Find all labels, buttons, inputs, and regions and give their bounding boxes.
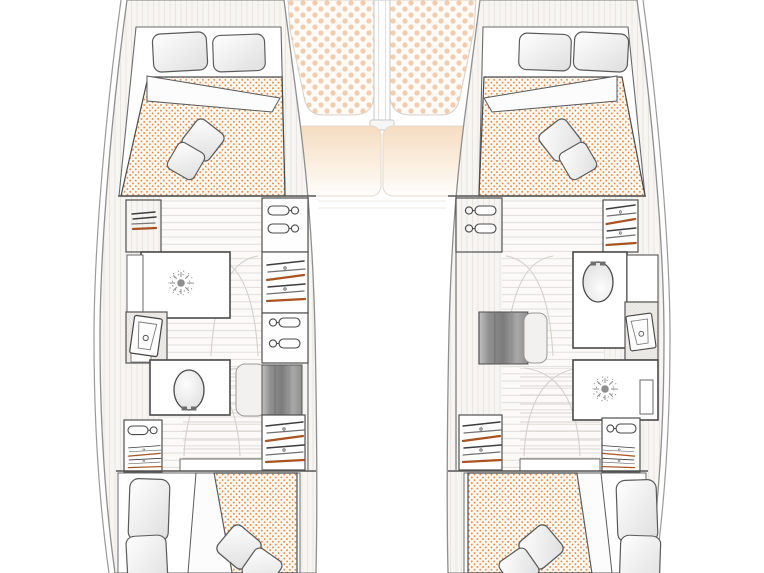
wardrobe [262,252,308,313]
toilet-room [150,360,230,415]
starboard-sunpad [388,0,476,115]
washbasin-area [625,302,658,360]
toilet-icon [583,262,613,303]
pillow [518,33,571,71]
port-sunpad [288,0,376,115]
shower-room [573,360,658,420]
companionway-steps [236,364,302,416]
catamaran-floorplan [0,0,764,573]
pillow [152,32,208,73]
pillow [128,478,170,541]
pillow [573,32,629,73]
starboard-hull [447,0,670,573]
hanging-locker [262,313,308,363]
locker-aft-outer [124,420,162,472]
mast-beam [370,0,394,130]
starboard-aft-cabin [448,471,661,573]
toilet-room [573,252,627,348]
shower-room [127,252,230,318]
side-cabinet [627,255,658,302]
hanging-locker [262,198,308,252]
steps-icon [262,365,302,415]
pillow [126,535,169,573]
toilet-icon [174,370,204,411]
shelf-cabinet [126,200,161,252]
washbasin-icon [626,313,656,351]
washbasin-area [126,312,167,363]
wardrobe [603,200,638,252]
washbasin-icon [129,315,162,357]
steps-icon [479,312,528,364]
aft-shelf [180,459,262,471]
hanging-locker [456,198,502,252]
port-aft-cabin [116,471,316,573]
port-hull [94,0,317,573]
locker-aft-inner [459,415,502,470]
companionway-steps [479,312,547,364]
floorplan-canvas [0,0,764,573]
locker-aft-inner [262,415,305,470]
aft-shelf [520,459,600,471]
saloon-front-hint [318,201,446,208]
locker-aft-outer [602,418,640,472]
pillow [212,34,265,72]
pillow [616,479,658,542]
pillow [619,535,661,573]
